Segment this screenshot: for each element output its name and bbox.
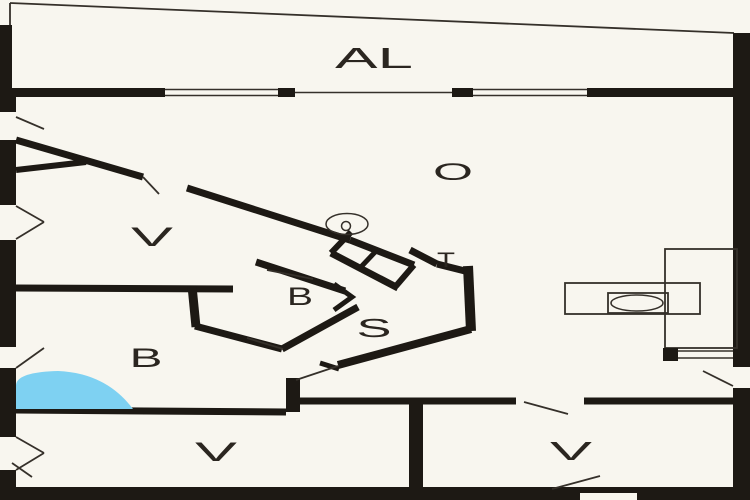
room-label-bath-center: B — [287, 283, 313, 311]
floor-plan-image: ALOVBBTSVV — [0, 0, 750, 500]
floor-plan: ALOVBBTSVV — [0, 0, 750, 500]
room-label-toilet: T — [437, 249, 455, 272]
room-label-living-room: O — [433, 159, 473, 186]
room-label-bath-left: B — [130, 343, 163, 373]
room-label-room-bottom-right: V — [550, 436, 594, 466]
room-label-sauna: S — [357, 313, 392, 343]
room-label-room-bottom-left: V — [195, 437, 237, 467]
room-label-balcony: AL — [335, 43, 413, 75]
room-label-room-top-left: V — [131, 222, 173, 252]
